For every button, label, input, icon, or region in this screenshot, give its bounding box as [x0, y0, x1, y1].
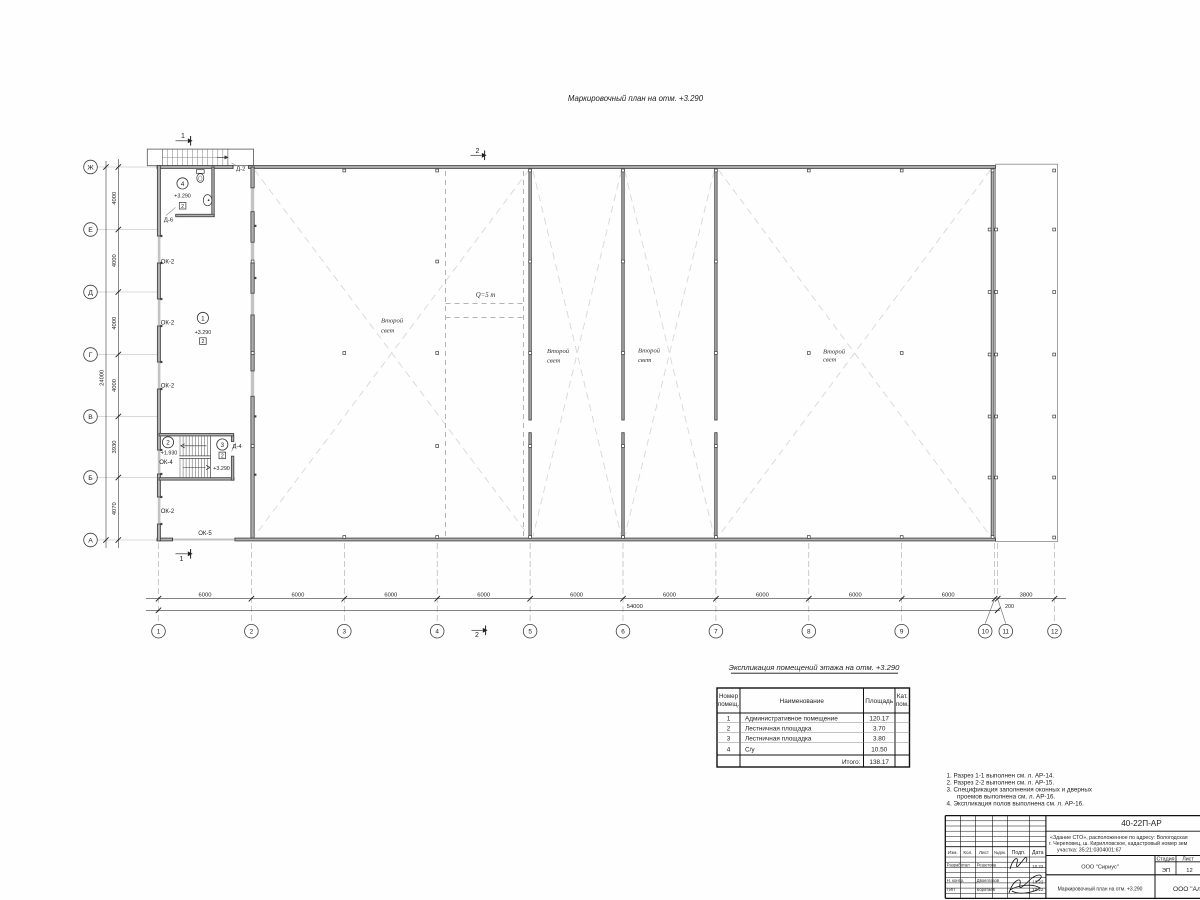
svg-text:Лист: Лист	[1182, 856, 1194, 862]
svg-text:+3.290: +3.290	[213, 466, 230, 472]
svg-text:6000: 6000	[570, 592, 583, 598]
svg-text:Наименование: Наименование	[780, 698, 825, 705]
svg-text:Кат.: Кат.	[897, 693, 908, 700]
svg-text:Д-2: Д-2	[236, 166, 245, 172]
svg-text:Маркировочный план на отм. +3.: Маркировочный план на отм. +3.290	[1058, 885, 1143, 892]
svg-text:С/у: С/у	[745, 747, 755, 754]
svg-text:Второй: Второй	[381, 318, 404, 325]
svg-text:9: 9	[900, 629, 904, 636]
svg-text:4000: 4000	[112, 192, 118, 205]
svg-text:4: 4	[181, 181, 185, 188]
svg-text:ЭП: ЭП	[1162, 868, 1170, 874]
svg-text:1: 1	[157, 629, 161, 636]
svg-text:40-22П-АР: 40-22П-АР	[1121, 819, 1162, 828]
svg-text:Второй: Второй	[638, 347, 661, 354]
svg-text:1: 1	[181, 133, 185, 140]
svg-text:Решетова: Решетова	[977, 863, 997, 868]
svg-text:4: 4	[435, 629, 439, 636]
svg-text:+1.930: +1.930	[161, 450, 178, 456]
svg-text:Административное помещение: Административное помещение	[745, 716, 838, 723]
svg-text:Е: Е	[88, 227, 93, 234]
svg-text:8: 8	[807, 629, 811, 636]
svg-text:Б: Б	[88, 475, 93, 482]
svg-text:Д-4: Д-4	[232, 444, 242, 450]
svg-text:Двоеглазов: Двоеглазов	[977, 878, 1000, 883]
svg-text:2: 2	[181, 204, 184, 210]
svg-text:Лестничная площадка: Лестничная площадка	[745, 736, 812, 743]
svg-text:ОК-4: ОК-4	[159, 460, 173, 466]
svg-text:ООО "Альянспроект": ООО "Альянспроект"	[1173, 886, 1200, 893]
svg-text:2: 2	[727, 726, 731, 733]
svg-text:ОК-5: ОК-5	[198, 531, 212, 537]
svg-text:ОК-2: ОК-2	[161, 320, 175, 326]
svg-text:4000: 4000	[112, 379, 118, 392]
svg-text:Лестничная площадка: Лестничная площадка	[745, 726, 812, 733]
svg-text:Площадь: Площадь	[865, 698, 893, 705]
svg-text:2. Разрез 2-2 выполнен см. л.: 2. Разрез 2-2 выполнен см. л. АР-15.	[947, 780, 1055, 787]
svg-text:3.80: 3.80	[873, 736, 886, 743]
svg-text:138.17: 138.17	[869, 759, 889, 766]
svg-text:6000: 6000	[942, 592, 955, 598]
svg-text:10: 10	[982, 629, 990, 636]
svg-text:Д-6: Д-6	[164, 218, 174, 224]
svg-text:11: 11	[1002, 629, 1009, 636]
svg-text:Коротаев: Коротаев	[977, 887, 996, 892]
svg-text:Q=5 т: Q=5 т	[476, 292, 496, 299]
svg-text:Изм.: Изм.	[948, 850, 958, 855]
svg-text:3930: 3930	[112, 441, 118, 454]
svg-text:200: 200	[1005, 604, 1014, 610]
svg-text:ООО "Сириус": ООО "Сириус"	[1081, 865, 1119, 871]
svg-text:2: 2	[201, 339, 204, 345]
svg-text:Второй: Второй	[823, 348, 846, 355]
svg-text:2: 2	[221, 454, 224, 460]
svg-text:свет: свет	[547, 357, 561, 364]
svg-text:1: 1	[201, 315, 205, 322]
svg-text:4000: 4000	[112, 317, 118, 330]
svg-text:2: 2	[166, 440, 170, 447]
svg-text:6: 6	[621, 629, 625, 636]
svg-text:6000: 6000	[477, 592, 490, 598]
svg-text:Лист: Лист	[979, 850, 990, 855]
svg-text:участка: 35:21:0304001:67: участка: 35:21:0304001:67	[1057, 847, 1122, 853]
svg-text:свет: свет	[381, 328, 395, 335]
svg-text:«Здание СТО», расположенное по: «Здание СТО», расположенное по адресу: В…	[1050, 835, 1188, 841]
svg-text:12: 12	[1051, 629, 1059, 636]
svg-text:3.70: 3.70	[873, 726, 886, 733]
svg-text:+3.290: +3.290	[174, 194, 191, 200]
svg-text:проемов выполнена см. л. АР-16: проемов выполнена см. л. АР-16.	[957, 794, 1056, 801]
svg-text:2: 2	[250, 629, 254, 636]
svg-text:Ж: Ж	[87, 164, 94, 171]
svg-text:ОК-2: ОК-2	[161, 260, 175, 266]
svg-text:4: 4	[727, 747, 731, 754]
svg-text:Итого:: Итого:	[842, 759, 861, 766]
svg-text:ГИП: ГИП	[947, 887, 955, 892]
svg-text:6000: 6000	[384, 592, 397, 598]
svg-text:54000: 54000	[627, 604, 643, 610]
svg-text:4070: 4070	[112, 502, 118, 515]
svg-text:3: 3	[727, 736, 731, 743]
svg-text:Номер: Номер	[719, 693, 739, 700]
svg-text:+3.290: +3.290	[195, 330, 212, 336]
svg-text:24000: 24000	[100, 370, 106, 386]
svg-text:1: 1	[180, 556, 184, 563]
svg-text:г. Череповец, ш. Кирилловское,: г. Череповец, ш. Кирилловское, кадастров…	[1049, 840, 1188, 847]
svg-text:пом.: пом.	[896, 701, 909, 708]
svg-text:10.22: 10.22	[1032, 864, 1044, 869]
svg-text:3800: 3800	[1020, 592, 1033, 598]
svg-text:12: 12	[1186, 868, 1192, 874]
svg-text:4. Экспликация полов выполнена: 4. Экспликация полов выполнена см. л. АР…	[947, 801, 1085, 808]
svg-text:Кол.: Кол.	[963, 850, 972, 855]
svg-text:4000: 4000	[112, 254, 118, 267]
svg-text:Д: Д	[88, 289, 93, 296]
svg-text:10.50: 10.50	[871, 747, 887, 754]
svg-text:свет: свет	[823, 356, 837, 363]
svg-text:2: 2	[476, 148, 480, 155]
svg-text:Стадия: Стадия	[1156, 856, 1174, 862]
svg-text:Дата: Дата	[1032, 850, 1044, 856]
svg-text:6000: 6000	[291, 592, 304, 598]
svg-text:2: 2	[475, 632, 479, 639]
svg-text:помещ.: помещ.	[718, 701, 740, 708]
svg-text:свет: свет	[638, 357, 652, 364]
svg-text:Второй: Второй	[547, 348, 570, 355]
svg-text:Разработал: Разработал	[947, 863, 970, 868]
svg-text:7: 7	[714, 629, 718, 636]
svg-text:ОК-2: ОК-2	[161, 509, 175, 515]
svg-text:ОК-2: ОК-2	[161, 384, 175, 390]
svg-text:Экспликация помещений этажа на: Экспликация помещений этажа на отм. +3.2…	[729, 663, 900, 672]
svg-text:120.17: 120.17	[869, 716, 889, 723]
svg-text:6000: 6000	[663, 592, 676, 598]
svg-text:6000: 6000	[849, 592, 862, 598]
svg-text:Н. контр.: Н. контр.	[947, 878, 964, 883]
svg-text:6000: 6000	[199, 592, 212, 598]
svg-text:Г: Г	[89, 352, 93, 359]
svg-text:3: 3	[343, 629, 347, 636]
svg-text:Маркировочный план на отм. +3.: Маркировочный план на отм. +3.290	[568, 94, 704, 103]
svg-text:А: А	[88, 537, 93, 544]
svg-text:3: 3	[221, 442, 225, 449]
svg-text:№док.: №док.	[994, 850, 1006, 855]
svg-text:6000: 6000	[756, 592, 769, 598]
svg-text:1: 1	[727, 716, 731, 723]
svg-text:Подп.: Подп.	[1012, 850, 1026, 856]
svg-text:5: 5	[528, 629, 532, 636]
svg-text:В: В	[88, 414, 93, 421]
